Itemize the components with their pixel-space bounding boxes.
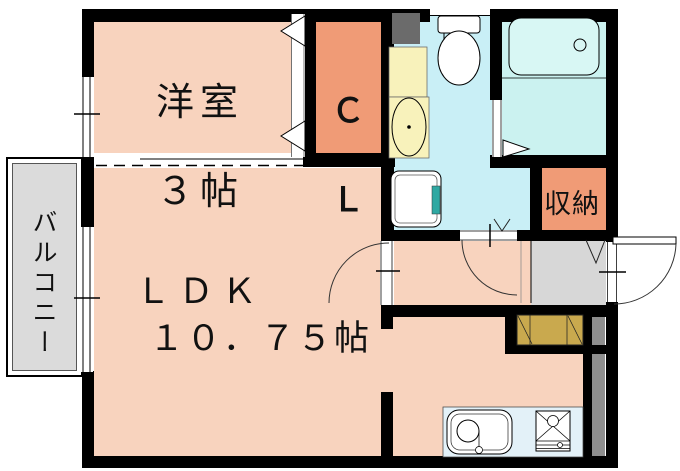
pipe-space-right-lower [592,354,605,456]
wall-segment [82,371,94,468]
label-storage: 収納 [535,182,609,221]
wall-segment [583,315,592,456]
wall-segment [82,9,618,22]
hallway-floor [394,241,531,305]
wall-segment [82,456,618,468]
pipe-space-top [392,13,420,44]
floorplan-canvas: 洋室 ３帖 Ｃ Ｌ ＬＤＫ １０．７５帖 収納 バルコニー [0,0,680,471]
wall-segment [381,305,612,317]
western-room-name: 洋室 [120,81,280,126]
wall-segment [381,392,393,462]
kitchen-floor [381,317,583,456]
label-balcony: バルコニー [29,184,61,384]
wall-segment [82,9,94,77]
label-western-room: 洋室 ３帖 [120,36,280,260]
wall-segment [517,230,618,241]
wall-segment [583,345,612,354]
wall-segment [82,157,94,227]
label-ldk-name: ＬＤＫ [115,263,285,314]
label-closet: Ｃ Ｌ [324,44,372,267]
sanitary-room [388,16,497,241]
entrance-floor [531,240,606,305]
bathroom [497,16,606,160]
closet-letter-c: Ｃ [324,89,372,134]
wall-segment [490,155,618,168]
wall-segment [381,230,460,241]
label-ldk-size: １０．７５帖 [125,310,395,361]
pipe-space-right-upper [592,317,605,345]
wall-segment [490,9,502,100]
western-room-size: ３帖 [120,170,280,215]
wall-segment [303,9,316,157]
closet-letter-l: Ｌ [324,178,372,223]
wall-segment [505,344,585,354]
